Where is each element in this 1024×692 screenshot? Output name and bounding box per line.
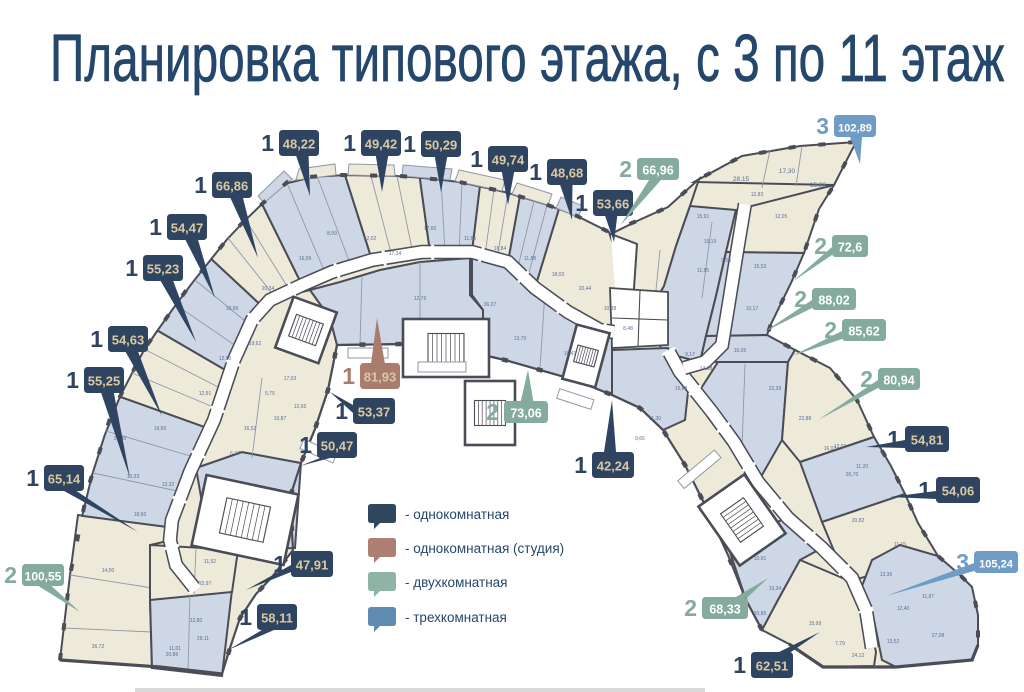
svg-text:47,91: 47,91	[296, 558, 329, 573]
svg-text:19,62: 19,62	[249, 341, 262, 347]
svg-text:28,11: 28,11	[197, 636, 209, 642]
svg-text:9,17: 9,17	[685, 352, 695, 358]
svg-text:65,14: 65,14	[48, 472, 81, 487]
svg-text:8,48: 8,48	[623, 326, 633, 332]
svg-text:11,30: 11,30	[649, 416, 661, 422]
svg-text:16,05: 16,05	[734, 348, 747, 354]
svg-text:- однокомнатная (студия): - однокомнатная (студия)	[405, 541, 564, 556]
svg-text:15,68: 15,68	[675, 386, 688, 392]
svg-text:15,91: 15,91	[697, 214, 710, 220]
svg-text:10,17: 10,17	[746, 306, 759, 312]
svg-text:15,97: 15,97	[199, 581, 212, 587]
svg-text:13,32: 13,32	[162, 482, 175, 488]
svg-text:54,81: 54,81	[911, 433, 944, 448]
svg-text:54,47: 54,47	[171, 221, 204, 236]
svg-text:11,87: 11,87	[922, 594, 934, 600]
svg-text:1: 1	[299, 432, 312, 458]
svg-text:- однокомнатная: - однокомнатная	[405, 507, 509, 522]
svg-text:24,12: 24,12	[852, 653, 865, 659]
svg-text:1: 1	[66, 367, 79, 393]
svg-text:1: 1	[90, 326, 103, 352]
svg-text:11,01: 11,01	[169, 646, 181, 652]
svg-text:88,02: 88,02	[818, 294, 849, 308]
svg-text:50,47: 50,47	[321, 439, 354, 454]
svg-text:11,85: 11,85	[697, 268, 709, 274]
svg-text:12,65: 12,65	[294, 404, 307, 410]
svg-text:13,52: 13,52	[887, 639, 900, 645]
svg-text:11,52: 11,52	[204, 559, 216, 565]
svg-text:20,44: 20,44	[579, 286, 592, 292]
svg-text:11,85: 11,85	[464, 236, 476, 242]
svg-text:1: 1	[261, 130, 274, 156]
svg-text:1: 1	[470, 146, 483, 172]
svg-text:5,75: 5,75	[265, 391, 275, 397]
svg-text:18,60: 18,60	[134, 512, 147, 518]
svg-text:50,29: 50,29	[425, 138, 458, 153]
svg-text:2: 2	[824, 317, 837, 343]
svg-text:28,15: 28,15	[733, 176, 750, 183]
svg-text:12,02: 12,02	[364, 236, 377, 242]
svg-text:53,66: 53,66	[597, 197, 630, 212]
svg-text:81,93: 81,93	[364, 370, 397, 385]
svg-text:73,06: 73,06	[510, 407, 541, 421]
svg-text:1: 1	[918, 477, 931, 503]
svg-text:17,60: 17,60	[424, 226, 437, 232]
svg-text:1: 1	[887, 426, 900, 452]
svg-text:10,34: 10,34	[769, 586, 782, 592]
svg-text:85,62: 85,62	[848, 325, 879, 339]
svg-text:20,86: 20,86	[166, 652, 179, 658]
svg-text:15,99: 15,99	[809, 621, 822, 627]
svg-text:- трехкомнатная: - трехкомнатная	[405, 610, 507, 625]
svg-text:102,89: 102,89	[838, 123, 872, 135]
svg-text:6,47: 6,47	[230, 451, 240, 457]
svg-text:Планировка типового этажа, с 3: Планировка типового этажа, с 3 по 11 эта…	[50, 21, 1004, 96]
svg-text:- двухкомнатная: - двухкомнатная	[405, 575, 507, 590]
svg-text:22,88: 22,88	[799, 416, 812, 422]
svg-text:1: 1	[125, 255, 138, 281]
svg-text:10,38: 10,38	[604, 306, 617, 312]
svg-text:11,15: 11,15	[894, 542, 906, 548]
svg-text:16,84: 16,84	[494, 246, 507, 252]
svg-text:1: 1	[343, 130, 356, 156]
svg-text:22,39: 22,39	[769, 386, 782, 392]
svg-text:20,85: 20,85	[754, 611, 767, 617]
svg-text:2: 2	[794, 286, 807, 312]
svg-text:13,03: 13,03	[834, 444, 847, 450]
svg-text:68,33: 68,33	[709, 603, 740, 617]
svg-text:1: 1	[26, 465, 39, 491]
svg-text:15,53: 15,53	[754, 264, 767, 270]
svg-text:54,63: 54,63	[112, 333, 145, 348]
svg-text:27,08: 27,08	[932, 633, 945, 639]
svg-text:2: 2	[619, 156, 632, 182]
svg-text:105,24: 105,24	[979, 559, 1014, 571]
svg-text:1: 1	[575, 190, 588, 216]
svg-text:66,96: 66,96	[642, 164, 673, 178]
svg-text:2: 2	[814, 233, 827, 259]
svg-text:100,55: 100,55	[25, 570, 62, 584]
svg-text:2: 2	[684, 595, 697, 621]
svg-text:1: 1	[733, 652, 746, 678]
svg-text:16,52: 16,52	[244, 426, 257, 432]
svg-text:12,40: 12,40	[897, 606, 910, 612]
svg-text:17,03: 17,03	[284, 376, 297, 382]
svg-text:49,42: 49,42	[365, 137, 398, 152]
svg-text:10,91: 10,91	[754, 556, 767, 562]
svg-text:1: 1	[574, 452, 587, 478]
svg-text:11,88: 11,88	[524, 256, 536, 262]
svg-text:19,60: 19,60	[154, 426, 167, 432]
svg-text:49,74: 49,74	[492, 153, 525, 168]
svg-text:62,51: 62,51	[756, 659, 789, 674]
svg-text:1: 1	[239, 604, 252, 630]
svg-text:12,76: 12,76	[414, 296, 427, 302]
svg-text:16,41: 16,41	[564, 351, 577, 357]
svg-text:13,33: 13,33	[127, 474, 140, 480]
svg-text:8,99: 8,99	[327, 231, 337, 237]
svg-text:20,34: 20,34	[262, 286, 275, 292]
svg-text:12,83: 12,83	[751, 192, 764, 198]
svg-text:2: 2	[4, 562, 17, 588]
svg-text:16,09: 16,09	[299, 256, 312, 262]
svg-text:42,24: 42,24	[597, 459, 630, 474]
svg-text:14,00: 14,00	[102, 568, 115, 574]
svg-text:66,86: 66,86	[216, 179, 249, 194]
svg-text:54,06: 54,06	[942, 484, 975, 499]
svg-text:3: 3	[816, 113, 829, 139]
svg-text:48,22: 48,22	[283, 137, 316, 152]
svg-text:1: 1	[529, 159, 542, 185]
svg-text:12,91: 12,91	[199, 391, 212, 397]
svg-text:72,6: 72,6	[838, 241, 862, 255]
svg-text:55,23: 55,23	[147, 262, 180, 277]
svg-text:36,27: 36,27	[484, 302, 497, 308]
svg-text:13,70: 13,70	[514, 336, 527, 342]
svg-text:1: 1	[149, 214, 162, 240]
svg-text:2: 2	[860, 366, 873, 392]
svg-text:10,87: 10,87	[274, 416, 287, 422]
svg-text:14,18: 14,18	[700, 366, 713, 372]
svg-text:9,34: 9,34	[721, 258, 731, 264]
svg-text:12,90: 12,90	[219, 356, 232, 362]
svg-text:12,80: 12,80	[190, 618, 203, 624]
svg-text:15,86: 15,86	[810, 182, 827, 189]
svg-text:55,25: 55,25	[88, 374, 121, 389]
svg-text:48,68: 48,68	[551, 166, 584, 181]
svg-text:1: 1	[403, 131, 416, 157]
svg-text:19,19: 19,19	[704, 239, 717, 245]
svg-text:17,30: 17,30	[779, 168, 796, 175]
svg-text:1: 1	[194, 172, 207, 198]
svg-text:53,37: 53,37	[358, 405, 391, 420]
svg-text:1: 1	[335, 398, 348, 424]
svg-text:1: 1	[273, 551, 286, 577]
svg-text:18,03: 18,03	[552, 272, 565, 278]
svg-text:9,66: 9,66	[635, 436, 645, 442]
svg-text:3: 3	[956, 549, 969, 575]
svg-text:20,70: 20,70	[846, 472, 859, 478]
svg-text:12,05: 12,05	[775, 214, 788, 220]
svg-text:11,20: 11,20	[856, 464, 868, 470]
svg-text:80,94: 80,94	[883, 374, 914, 388]
svg-text:36,72: 36,72	[92, 644, 105, 650]
svg-text:7,79: 7,79	[835, 641, 845, 647]
svg-text:58,11: 58,11	[261, 611, 293, 626]
svg-text:20,82: 20,82	[852, 518, 865, 524]
svg-text:17,34: 17,34	[389, 251, 402, 257]
svg-text:13,36: 13,36	[880, 572, 893, 578]
svg-text:2: 2	[486, 399, 499, 425]
svg-text:13,96: 13,96	[226, 306, 239, 312]
svg-text:1: 1	[342, 363, 355, 389]
